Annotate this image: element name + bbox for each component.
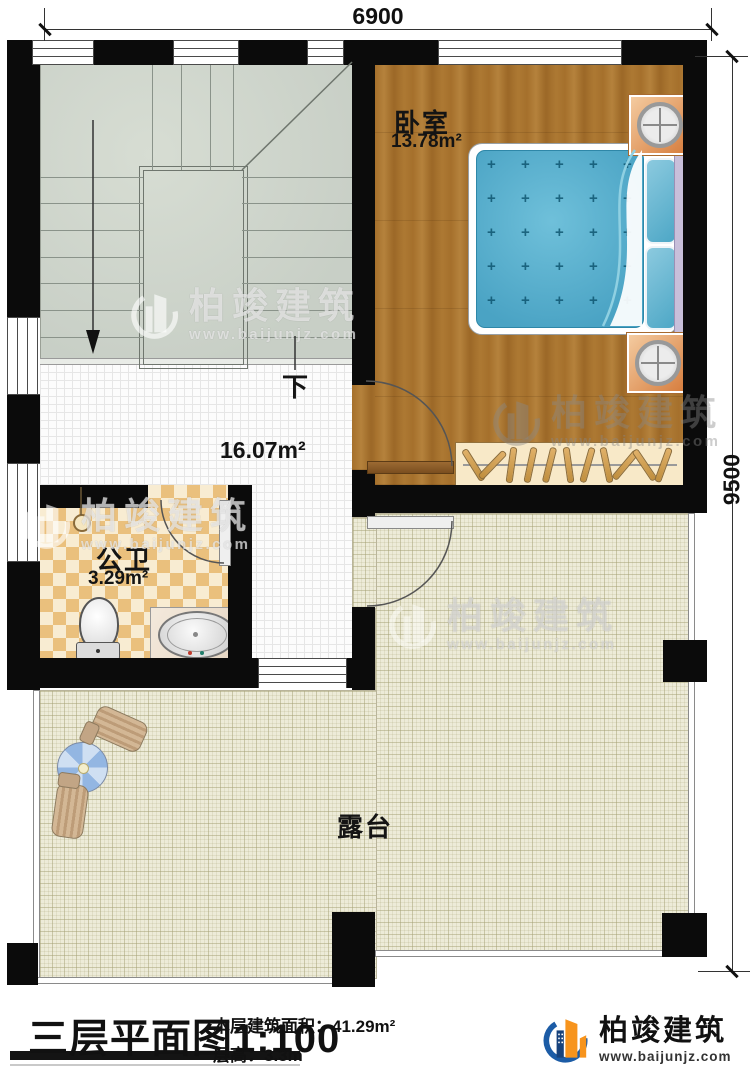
mattress-stitch: + bbox=[487, 191, 496, 206]
wall-segment bbox=[35, 485, 148, 508]
wall-segment bbox=[228, 508, 252, 658]
window bbox=[173, 40, 239, 65]
stair-tread bbox=[152, 65, 153, 170]
mattress-stitch: + bbox=[521, 293, 530, 308]
mattress-stitch: + bbox=[521, 259, 530, 274]
mattress-stitch: + bbox=[555, 225, 564, 240]
wall-segment bbox=[7, 40, 32, 65]
stair-tread bbox=[242, 283, 352, 284]
terrace-parapet-bottom-right bbox=[375, 950, 666, 957]
terrace-parapet-left bbox=[33, 690, 40, 979]
floor-height-line: 层高：3.3m bbox=[213, 1041, 303, 1066]
stair-tread bbox=[40, 337, 143, 338]
dimension-extension bbox=[44, 8, 45, 41]
mattress-stitch: + bbox=[623, 225, 632, 240]
wall-segment bbox=[345, 658, 375, 688]
nightstand bbox=[627, 333, 688, 393]
mattress-stitch: + bbox=[521, 191, 530, 206]
stair-tread bbox=[210, 65, 211, 170]
wall-segment bbox=[237, 40, 307, 65]
stair-tread bbox=[40, 310, 143, 311]
terrace-door-threshold bbox=[352, 517, 377, 609]
wall-segment bbox=[7, 658, 258, 688]
terrace-floor-upper bbox=[375, 513, 690, 955]
window bbox=[7, 463, 40, 562]
mattress-stitch: + bbox=[623, 157, 632, 172]
pendant-light-icon bbox=[73, 514, 91, 532]
bed-pillow bbox=[645, 246, 677, 330]
lounge-chair-headrest bbox=[57, 772, 81, 790]
window bbox=[7, 317, 40, 395]
stair-tread bbox=[181, 65, 182, 170]
mattress-stitch: + bbox=[589, 157, 598, 172]
dimension-extension bbox=[711, 8, 712, 41]
stair-tread bbox=[40, 257, 143, 258]
sink bbox=[158, 611, 236, 659]
window bbox=[258, 658, 347, 688]
terrace-parapet-right bbox=[688, 513, 695, 952]
stair-tread bbox=[242, 257, 352, 258]
table-lamp-icon bbox=[637, 102, 683, 148]
floor-area-value: 41.29m² bbox=[332, 1017, 395, 1036]
dimension-right-value: 9500 bbox=[719, 440, 746, 520]
mattress-stitch: + bbox=[521, 157, 530, 172]
stair-tread bbox=[242, 203, 352, 204]
window bbox=[438, 40, 622, 65]
stair-tread bbox=[242, 177, 352, 178]
dimension-extension bbox=[698, 971, 750, 972]
column bbox=[7, 943, 38, 985]
terrace-parapet-bottom-left bbox=[33, 977, 341, 984]
stair-tread bbox=[233, 65, 234, 170]
mattress-stitch: + bbox=[487, 225, 496, 240]
floor-height-label: 层高： bbox=[213, 1046, 264, 1065]
mattress-stitch: + bbox=[487, 157, 496, 172]
window bbox=[307, 40, 344, 65]
mattress-stitch: + bbox=[487, 259, 496, 274]
floor-height-value: 3.3m bbox=[264, 1046, 303, 1065]
stair-tread bbox=[242, 230, 352, 231]
table-lamp-icon bbox=[635, 340, 681, 386]
mattress-stitch: + bbox=[623, 293, 632, 308]
mattress-stitch: + bbox=[555, 191, 564, 206]
wall-segment bbox=[352, 65, 375, 385]
mattress-stitch: + bbox=[623, 191, 632, 206]
logo-company-name: 柏竣建筑 bbox=[599, 1017, 732, 1046]
wall-segment bbox=[228, 485, 252, 508]
hall-area: 16.07m² bbox=[220, 437, 306, 464]
logo-website: www.baijunjz.com bbox=[599, 1050, 732, 1064]
bathroom-area: 3.29m² bbox=[88, 568, 148, 590]
wall-segment bbox=[7, 65, 40, 317]
stair-tread bbox=[40, 230, 143, 231]
wall-segment bbox=[683, 65, 707, 513]
wall-segment bbox=[352, 470, 375, 517]
floor-plan: +++++++++++++++++++++++++ 卧室 bbox=[0, 0, 750, 1079]
stair-tread bbox=[242, 310, 352, 311]
nightstand bbox=[629, 95, 690, 155]
company-logo-icon bbox=[543, 1012, 591, 1068]
stair-tread bbox=[40, 283, 143, 284]
mattress-stitch: + bbox=[589, 259, 598, 274]
stair-tread bbox=[242, 337, 352, 338]
stair-tread bbox=[40, 203, 143, 204]
dimension-top-value: 6900 bbox=[338, 3, 418, 30]
wall-segment bbox=[92, 40, 173, 65]
bed-pillow bbox=[645, 158, 677, 244]
bathroom-door-threshold bbox=[148, 485, 228, 508]
mattress-stitch: + bbox=[487, 293, 496, 308]
mattress-stitch: + bbox=[623, 259, 632, 274]
column bbox=[332, 912, 375, 987]
bed-mattress: +++++++++++++++++++++++++ bbox=[476, 150, 644, 328]
bedroom-door-threshold bbox=[352, 385, 375, 470]
bathroom-door bbox=[219, 500, 231, 566]
terrace-label: 露台 bbox=[337, 807, 393, 844]
dimension-extension bbox=[695, 56, 748, 57]
column bbox=[663, 640, 707, 682]
mattress-stitch: + bbox=[589, 225, 598, 240]
column bbox=[662, 913, 707, 957]
terrace-door bbox=[367, 516, 454, 529]
wardrobe bbox=[455, 442, 685, 489]
mattress-stitch: + bbox=[555, 293, 564, 308]
mattress-stitch: + bbox=[589, 293, 598, 308]
company-logo: 柏竣建筑 www.baijunjz.com bbox=[543, 1012, 732, 1068]
wall-segment bbox=[7, 393, 40, 463]
floor-area-line: 本层建筑面积：41.29m² bbox=[213, 1012, 395, 1037]
bedroom-area: 13.78m² bbox=[391, 131, 462, 153]
floor-area-label: 本层建筑面积： bbox=[213, 1017, 332, 1036]
wall-segment bbox=[375, 485, 707, 513]
stair-tread bbox=[40, 177, 143, 178]
mattress-stitch: + bbox=[521, 225, 530, 240]
mattress-stitch: + bbox=[589, 191, 598, 206]
window bbox=[32, 40, 94, 65]
down-label: 下 bbox=[282, 367, 310, 404]
bedroom-door bbox=[367, 461, 454, 474]
wall-segment bbox=[620, 40, 707, 65]
mattress-stitch: + bbox=[555, 259, 564, 274]
mattress-stitch: + bbox=[555, 157, 564, 172]
wall-segment bbox=[342, 40, 438, 65]
stairwell-opening bbox=[143, 170, 244, 365]
